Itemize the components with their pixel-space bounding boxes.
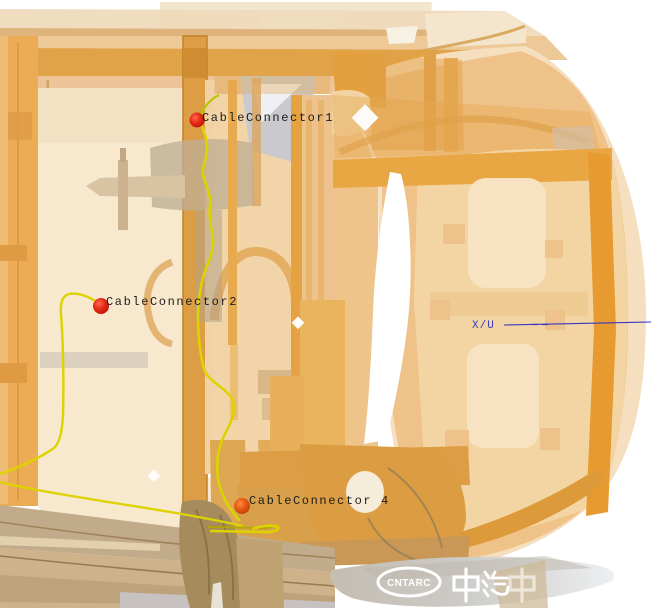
svg-text:CableConnector1: CableConnector1	[202, 111, 334, 125]
svg-text:CNTARC: CNTARC	[387, 578, 431, 589]
svg-text:X/U: X/U	[472, 320, 495, 332]
svg-text:CableConnector 4: CableConnector 4	[249, 494, 390, 508]
svg-text:CableConnector2: CableConnector2	[106, 295, 238, 309]
